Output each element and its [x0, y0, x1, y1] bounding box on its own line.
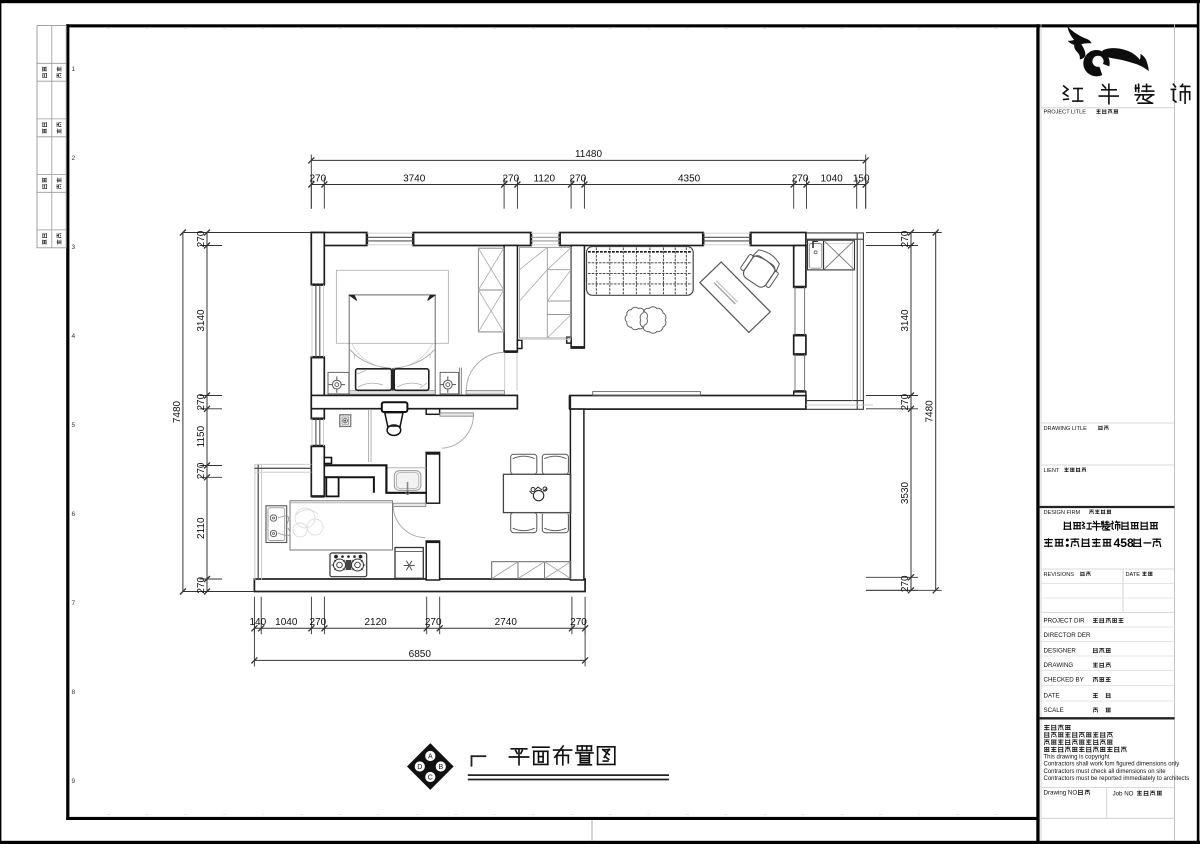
svg-text:150: 150 [853, 173, 870, 184]
svg-text:This drawing is copyright: This drawing is copyright [1044, 755, 1110, 761]
svg-text:270: 270 [196, 577, 207, 594]
svg-text:270: 270 [900, 575, 911, 592]
svg-text:3140: 3140 [196, 309, 207, 332]
svg-text:DIRECTOR DER: DIRECTOR DER [1044, 632, 1092, 639]
svg-text:458: 458 [1114, 536, 1135, 550]
svg-text:270: 270 [309, 173, 326, 184]
svg-text:B: B [438, 764, 443, 771]
svg-text:4: 4 [72, 333, 76, 340]
svg-text:270: 270 [570, 617, 587, 628]
svg-text:1150: 1150 [196, 425, 207, 447]
svg-text:LIENT: LIENT [1044, 468, 1060, 474]
svg-text:7: 7 [72, 600, 76, 607]
svg-text:5: 5 [72, 422, 76, 429]
svg-text:270: 270 [310, 617, 327, 628]
svg-text:2: 2 [72, 155, 76, 162]
svg-text:270: 270 [900, 393, 911, 410]
svg-text:Job NO: Job NO [1113, 790, 1134, 797]
svg-text:7480: 7480 [172, 400, 183, 423]
svg-text:1040: 1040 [820, 173, 843, 184]
svg-text:DRAWING LITLE: DRAWING LITLE [1044, 426, 1088, 432]
svg-text:Contractors must be reported i: Contractors must be reported immediately… [1044, 776, 1190, 782]
svg-text:SCALE: SCALE [1044, 707, 1064, 714]
svg-text:D: D [417, 764, 422, 771]
svg-text:270: 270 [502, 173, 519, 184]
svg-text:CHECKED BY: CHECKED BY [1044, 677, 1084, 684]
svg-text:Drawing NO: Drawing NO [1044, 790, 1078, 797]
svg-text:3: 3 [72, 244, 76, 251]
svg-text:DESIGNER: DESIGNER [1044, 648, 1077, 655]
svg-text:Contractors must check all dim: Contractors must check all dimensions on… [1044, 769, 1167, 775]
svg-text:REVISIONS: REVISIONS [1044, 572, 1075, 578]
svg-text:9: 9 [72, 778, 76, 785]
svg-text:140: 140 [249, 617, 266, 628]
svg-text:1040: 1040 [275, 617, 298, 628]
svg-text:270: 270 [425, 617, 442, 628]
svg-text:Contractors shall work fom fig: Contractors shall work fom figured dimen… [1044, 762, 1180, 768]
svg-text:3740: 3740 [403, 173, 426, 184]
svg-text:270: 270 [792, 173, 809, 184]
svg-text:270: 270 [196, 230, 207, 247]
svg-text:2110: 2110 [196, 517, 207, 539]
svg-text:270: 270 [569, 173, 586, 184]
svg-text:4350: 4350 [678, 173, 701, 184]
svg-text:PROJECT DIR: PROJECT DIR [1044, 618, 1086, 625]
svg-text:DATE: DATE [1126, 572, 1141, 578]
svg-text:270: 270 [196, 462, 207, 479]
svg-text:7480: 7480 [925, 400, 936, 423]
svg-text:3530: 3530 [900, 481, 911, 504]
svg-text:6: 6 [72, 511, 76, 518]
svg-text:8: 8 [72, 689, 76, 696]
svg-text:270: 270 [900, 230, 911, 247]
svg-text:A: A [428, 753, 433, 760]
svg-text:PROJECT LITLE: PROJECT LITLE [1044, 110, 1087, 116]
svg-text:2120: 2120 [364, 617, 387, 628]
svg-text:6850: 6850 [409, 649, 432, 660]
svg-text:C: C [428, 774, 433, 781]
svg-text:2740: 2740 [495, 617, 518, 628]
svg-text:3140: 3140 [900, 309, 911, 332]
svg-text:1120: 1120 [534, 173, 556, 184]
svg-text:DRAWING: DRAWING [1044, 662, 1074, 669]
svg-text:DESIGN FIRM: DESIGN FIRM [1044, 510, 1081, 516]
svg-text:11480: 11480 [575, 149, 603, 160]
svg-text:270: 270 [196, 393, 207, 410]
svg-text:1: 1 [72, 66, 76, 73]
svg-text:DATE: DATE [1044, 693, 1060, 700]
